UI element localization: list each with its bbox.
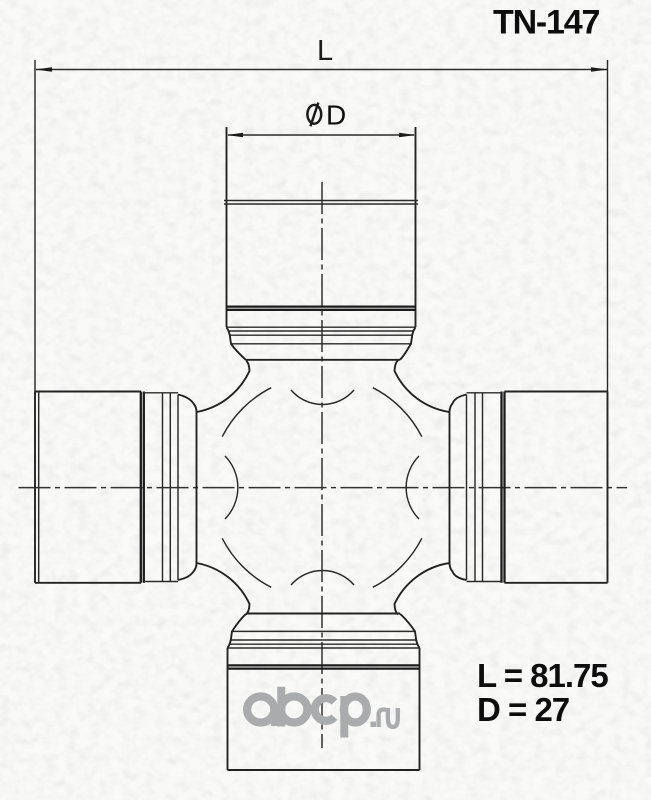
- svg-text:D: D: [326, 100, 346, 131]
- svg-text:D = 27: D = 27: [477, 691, 569, 728]
- svg-text:L = 81.75: L = 81.75: [477, 657, 608, 694]
- svg-text:L: L: [317, 35, 333, 67]
- svg-text:TN-147: TN-147: [493, 4, 599, 42]
